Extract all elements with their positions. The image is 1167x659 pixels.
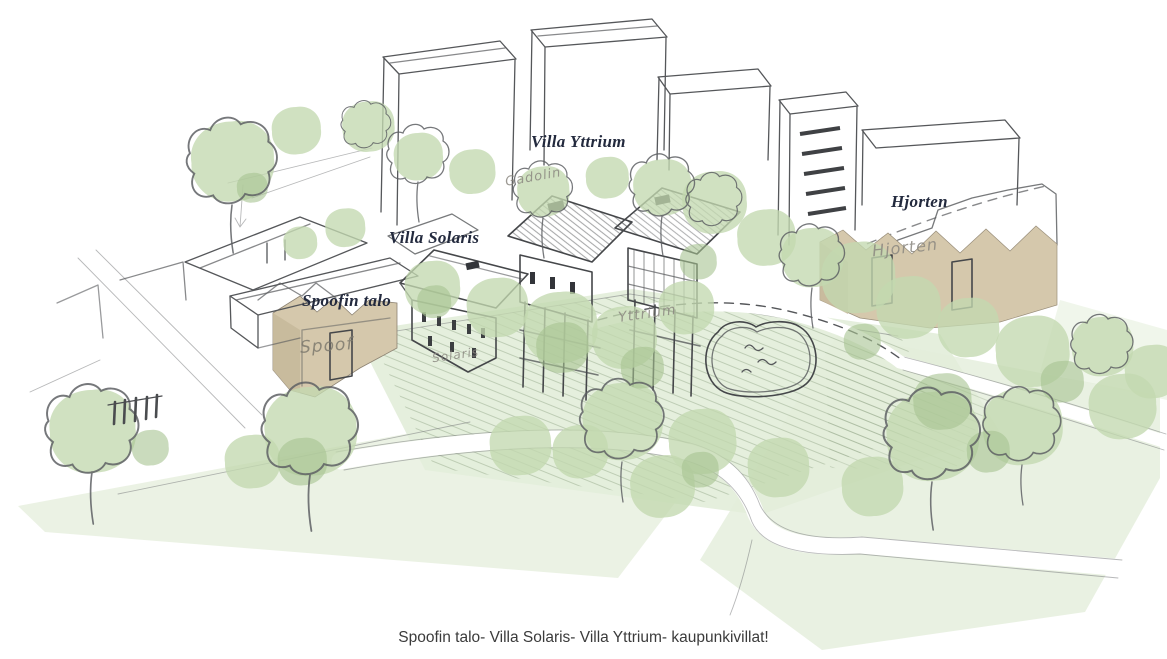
- villa-yttrium-windows: [530, 272, 575, 294]
- caption-text: Spoofin talo- Villa Solaris- Villa Yttri…: [0, 629, 1167, 647]
- label-villa-yttrium: Villa Yttrium: [531, 132, 626, 152]
- label-hjorten: Hjorten: [891, 192, 948, 212]
- label-villa-solaris: Villa Solaris: [389, 228, 479, 248]
- balcony-stripes: [800, 128, 846, 214]
- architectural-site-sketch: Villa Yttrium Villa Solaris Spoofin talo…: [0, 0, 1167, 659]
- site-sketch-canvas: [0, 0, 1167, 659]
- label-spoofin-talo: Spoofin talo: [302, 291, 391, 311]
- handwritten-spoof: Spoof: [299, 334, 354, 358]
